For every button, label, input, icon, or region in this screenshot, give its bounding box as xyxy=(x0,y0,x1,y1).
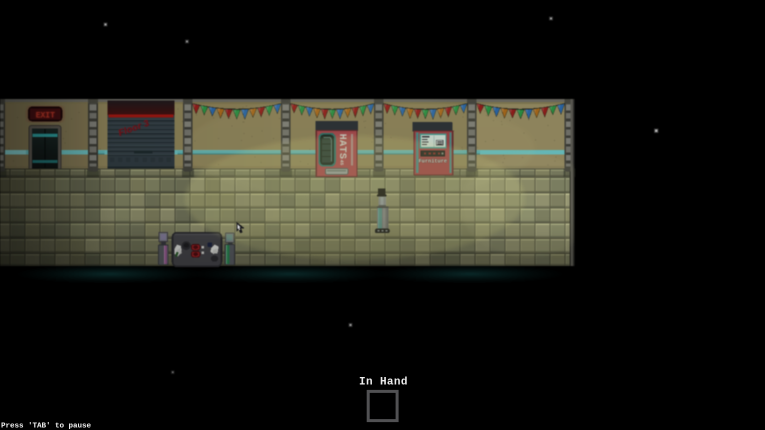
svg-text:Press 'TAB' to pause: Press 'TAB' to pause xyxy=(1,422,91,430)
svg-text:In Hand: In Hand xyxy=(359,376,408,388)
